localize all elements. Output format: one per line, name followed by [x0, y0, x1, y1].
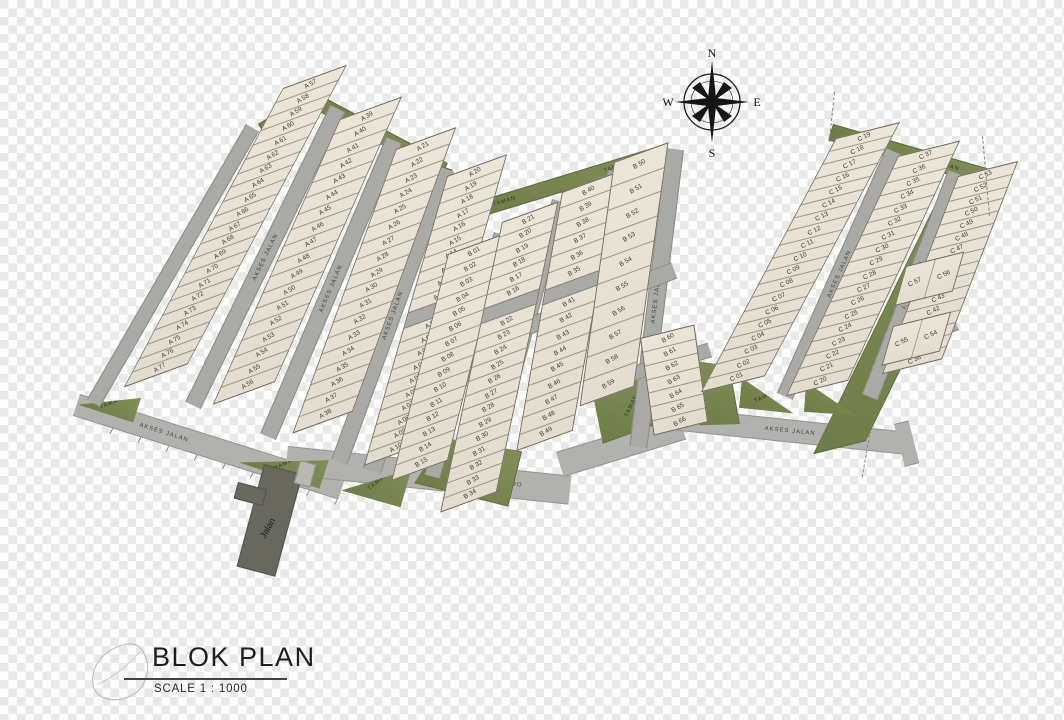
park-label: TAMAN: [753, 389, 777, 404]
road-label: AKSES JALAN: [764, 425, 816, 436]
compass-north: N: [708, 46, 717, 60]
lot-label: A 56: [240, 378, 255, 391]
lot-label: B 35: [567, 265, 582, 278]
lot-label: B 50: [632, 158, 647, 171]
lot-label: B 52: [625, 207, 640, 220]
lot-label: B 54: [618, 256, 633, 269]
lot-label: B 59: [601, 377, 616, 390]
lot-label: C 55: [894, 336, 909, 348]
title-block: BLOK PLAN SCALE 1 : 1000: [80, 634, 380, 714]
lot-label: B 53: [622, 231, 637, 244]
lot-label: B 56: [611, 304, 626, 317]
lot-label: C 54: [923, 329, 938, 341]
lot-label: C 01: [729, 371, 744, 383]
lot-label: A 77: [152, 362, 167, 375]
lot-label: C 20: [813, 375, 828, 387]
lot-label: B 58: [605, 353, 620, 366]
compass-east: E: [753, 95, 760, 109]
lot-label: B 49: [538, 426, 553, 439]
entry-road-label: Jalan: [258, 517, 277, 541]
lot-label: C 57: [907, 276, 922, 288]
compass-south: S: [709, 146, 716, 160]
lot-label: B 55: [615, 280, 630, 293]
compass-rose: N S W E: [660, 44, 765, 162]
plan-title: BLOK PLAN: [152, 642, 316, 673]
title-rule: [124, 678, 287, 680]
lot-label: B 34: [463, 488, 478, 501]
lot-label: B 15: [414, 456, 429, 469]
lot-label: B 66: [672, 415, 687, 428]
lot-label: A 38: [318, 408, 333, 421]
entry-road: Jalan: [237, 464, 303, 577]
lot-label: B 57: [608, 329, 623, 342]
compass-west: W: [662, 95, 674, 109]
blok-plan-canvas: AKSES JALAN JALAN METRO AKSES JALAN TAMA…: [0, 0, 1064, 720]
lot-label: B 51: [629, 183, 644, 196]
park-label: TAMAN: [492, 195, 517, 208]
scale-label: SCALE 1 : 1000: [154, 683, 248, 695]
leaf-sketch-icon: [84, 638, 162, 706]
lot-label: C 56: [936, 269, 951, 281]
